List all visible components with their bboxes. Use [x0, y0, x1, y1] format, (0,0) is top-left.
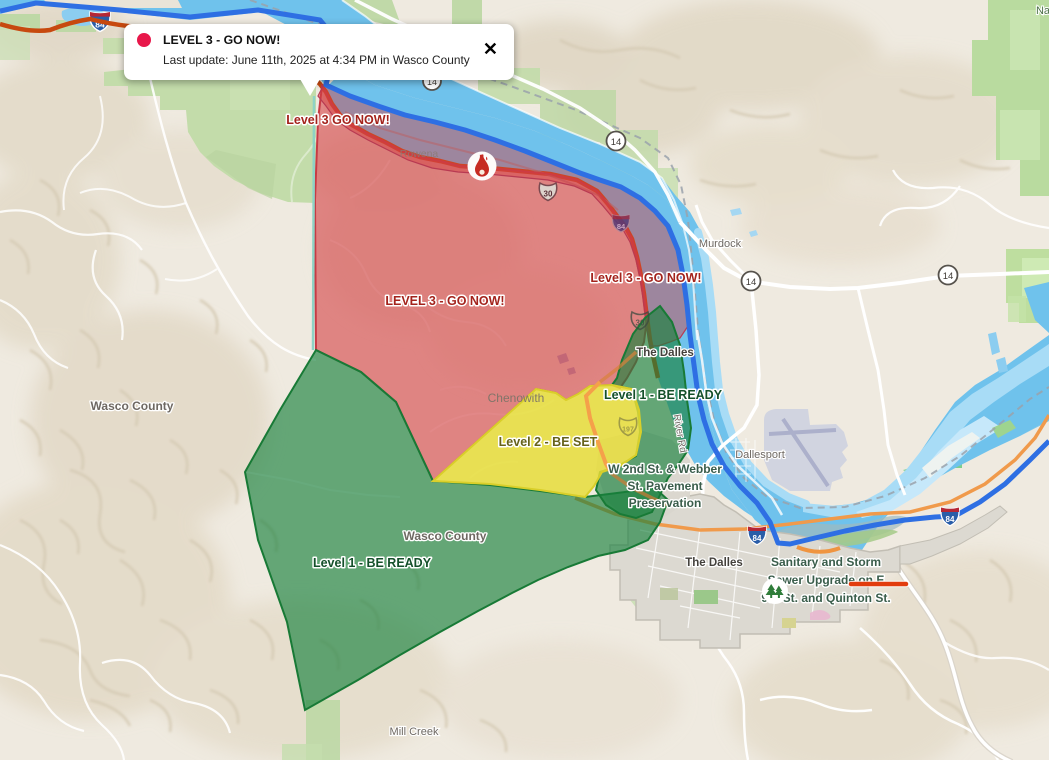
svg-text:The Dalles: The Dalles: [636, 347, 694, 359]
svg-text:Dallesport: Dallesport: [735, 449, 785, 461]
svg-text:Sanitary and Storm: Sanitary and Storm: [771, 555, 881, 569]
svg-text:30: 30: [636, 319, 645, 328]
svg-text:84: 84: [946, 515, 955, 524]
svg-text:Wasco County: Wasco County: [91, 399, 174, 413]
svg-text:Wasco County: Wasco County: [404, 529, 487, 543]
svg-text:14: 14: [611, 137, 622, 148]
svg-text:W 2nd St. & Webber: W 2nd St. & Webber: [608, 462, 722, 476]
svg-text:Preservation: Preservation: [629, 496, 702, 510]
svg-text:84: 84: [617, 222, 626, 231]
svg-text:84: 84: [753, 534, 762, 543]
svg-text:St. Pavement: St. Pavement: [627, 479, 702, 493]
svg-text:Murdock: Murdock: [699, 238, 742, 250]
svg-text:Na: Na: [1036, 5, 1049, 17]
svg-text:Mill Creek: Mill Creek: [390, 726, 439, 738]
svg-text:30: 30: [544, 190, 553, 199]
svg-text:Rowena: Rowena: [400, 148, 439, 160]
svg-text:Level 3 - GO NOW!: Level 3 - GO NOW!: [590, 271, 701, 285]
svg-text:Level 3 GO NOW!: Level 3 GO NOW!: [286, 113, 390, 127]
svg-text:14: 14: [943, 271, 954, 282]
svg-text:The Dalles: The Dalles: [685, 557, 743, 569]
svg-text:197: 197: [622, 427, 634, 434]
svg-text:Level 2 - BE SET: Level 2 - BE SET: [499, 435, 598, 449]
svg-text:Chenowith: Chenowith: [488, 391, 545, 405]
svg-text:14: 14: [746, 277, 757, 288]
svg-text:Level 1 - BE READY: Level 1 - BE READY: [313, 556, 432, 570]
svg-text:Level 1 - BE READY: Level 1 - BE READY: [604, 388, 723, 402]
svg-text:LEVEL 3 - GO NOW!: LEVEL 3 - GO NOW!: [385, 294, 504, 308]
